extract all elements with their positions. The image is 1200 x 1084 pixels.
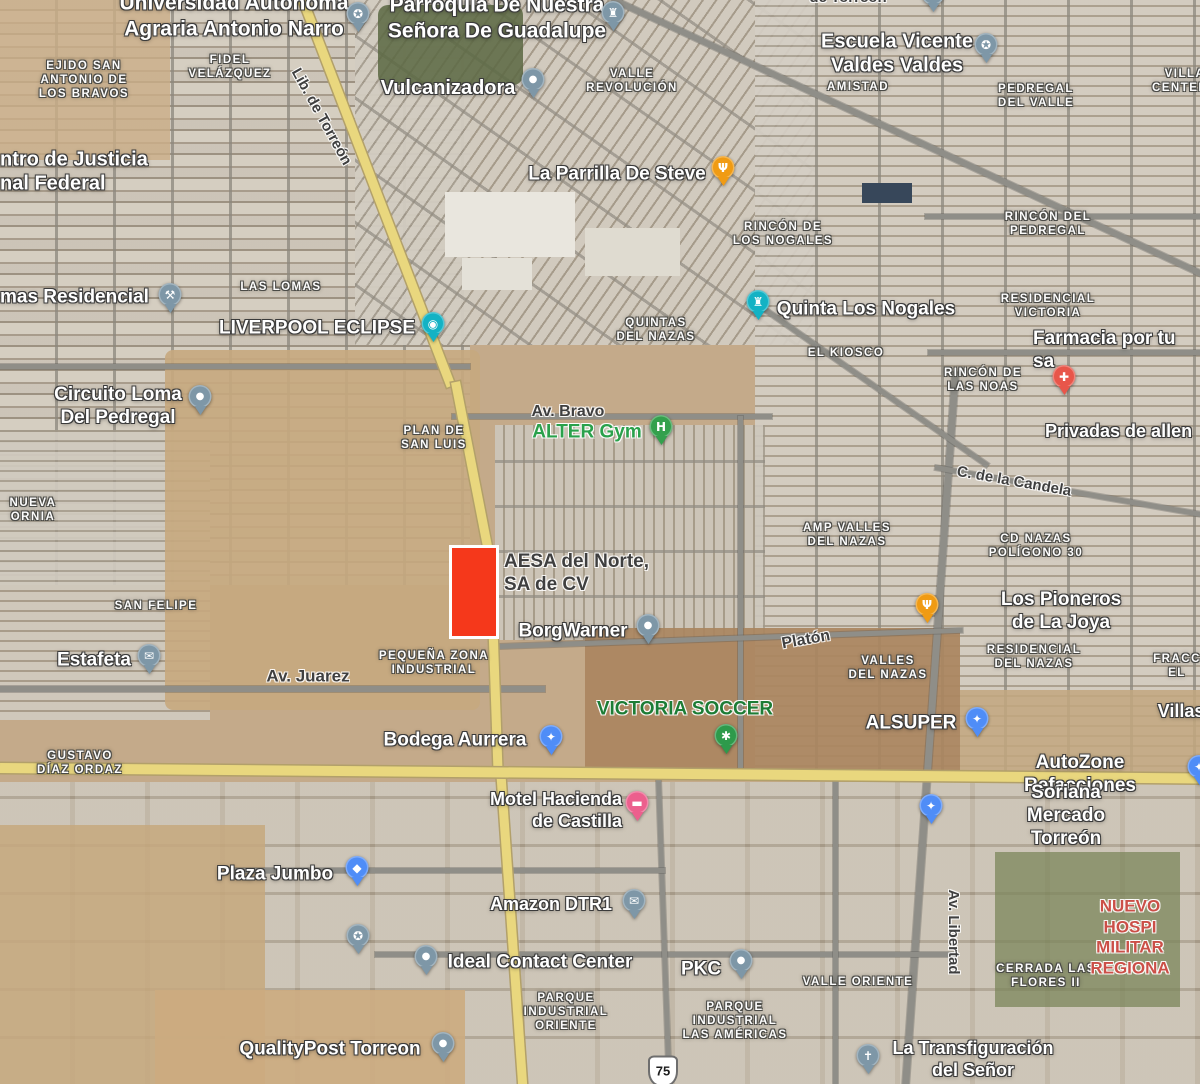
map-label-torreon-fragment: de Torreón: [809, 0, 886, 7]
vulcanizadora-pin[interactable]: ●: [522, 68, 545, 98]
map-label-el-kiosco: EL KIOSCO: [808, 346, 885, 360]
map-label-cerrada-las-flores-ii: CERRADA LAS FLORES II: [996, 962, 1096, 990]
church-icon: ♜: [608, 7, 619, 19]
lomas-residencial-pin[interactable]: ⚒: [159, 283, 182, 313]
warehouse-building-3: [462, 258, 532, 290]
pin-tail: [545, 746, 557, 755]
pin-tail: [921, 614, 933, 623]
map-label-liverpool-eclipse[interactable]: LIVERPOOL ECLIPSE: [219, 316, 415, 339]
circuito-loma-pin[interactable]: ●: [189, 385, 212, 415]
pin-tail: [164, 304, 176, 313]
alter-gym-pin[interactable]: H: [650, 415, 673, 445]
map-label-parque-industrial-oriente: PARQUE INDUSTRIAL ORIENTE: [524, 991, 609, 1033]
parroquia-pin[interactable]: ♜: [602, 1, 625, 31]
map-label-cd-nazas-poligono-30: CD NAZAS POLÍGONO 30: [989, 532, 1083, 560]
map-label-los-pioneros-de-la-joya[interactable]: Los Pioneros de La Joya: [992, 588, 1131, 634]
map-label-san-felipe: SAN FELIPE: [115, 599, 198, 613]
map-label-ejido-san-antonio: EJIDO SAN ANTONIO DE LOS BRAVOS: [39, 59, 129, 101]
map-label-amp-valles-del-nazas: AMP VALLES DEL NAZAS: [803, 521, 891, 549]
amazon-pin[interactable]: ✉: [623, 889, 646, 919]
pin-tail: [735, 970, 747, 979]
map-label-villas[interactable]: Villas: [1158, 701, 1200, 723]
pin-tail: [971, 728, 983, 737]
map-label-la-transfiguracion-del-senor[interactable]: La Transfiguración del Señor: [892, 1038, 1053, 1082]
motel-pin[interactable]: ▬: [626, 791, 649, 821]
map-label-borgwarner[interactable]: BorgWarner: [518, 619, 627, 642]
farmacia-pin[interactable]: ✚: [1053, 365, 1076, 395]
road-h-mid-left: [0, 364, 470, 369]
pin-tail: [631, 812, 643, 821]
soccer-icon: ✱: [721, 730, 731, 742]
map-label-fracc-el: FRACC EL: [1153, 652, 1200, 680]
map-label-estafeta[interactable]: Estafeta: [57, 648, 131, 671]
route-75-shield: 75: [648, 1056, 678, 1084]
alsuper-pin[interactable]: ✦: [966, 707, 989, 737]
pin-tail: [1058, 386, 1070, 395]
shopping-cart-icon: ✦: [1194, 761, 1200, 773]
autozone-pin-cut[interactable]: ✦: [1188, 755, 1200, 785]
plaza-jumbo-pin[interactable]: ◆: [346, 856, 369, 886]
transfiguracion-pin[interactable]: ✝: [857, 1044, 880, 1074]
pin-tail: [980, 54, 992, 63]
road-v-bottom-1: [833, 770, 838, 1084]
pin-tail: [437, 1053, 449, 1062]
dot-icon: ●: [529, 75, 538, 85]
school-pin-unlabeled[interactable]: ✪: [347, 924, 370, 954]
pioneros-pin[interactable]: Ψ: [916, 593, 939, 623]
map-label-nuevo-hospital-militar: NUEVO HOSPI MILITAR REGIONA: [1090, 897, 1169, 980]
map-label-ideal-contact-center[interactable]: Ideal Contact Center: [448, 950, 633, 973]
ideal-contact-pin[interactable]: ●: [415, 945, 438, 975]
map-label-valle-oriente: VALLE ORIENTE: [803, 975, 914, 989]
pin-tail: [720, 745, 732, 754]
satellite-map[interactable]: 75 EJIDO SAN ANTONIO DE LOS BRAVOSFIDEL …: [0, 0, 1200, 1084]
map-label-victoria-soccer: VICTORIA SOCCER: [597, 697, 773, 720]
borgwarner-pin[interactable]: ●: [637, 614, 660, 644]
pin-tail: [427, 333, 439, 342]
pin-tail: [351, 877, 363, 886]
pharmacy-icon: ✚: [1059, 371, 1069, 383]
shopping-cart-icon: ✦: [926, 800, 936, 812]
map-label-soriana-mercado-torreon[interactable]: Soriana Mercado Torreón: [999, 781, 1133, 851]
map-label-qualitypost-torreon[interactable]: QualityPost Torreon: [239, 1037, 420, 1060]
map-label-parque-industrial-las-americas: PARQUE INDUSTRIAL LAS AMÉRICAS: [682, 1000, 787, 1042]
graduation-cap-icon: ✪: [353, 930, 363, 942]
mail-icon: ✉: [629, 895, 639, 907]
map-label-rincon-del-pedregal: RINCÓN DEL PEDREGAL: [1005, 210, 1092, 238]
map-label-nueva-ornia: NUEVA ORNIA: [10, 496, 57, 524]
map-label-privadas-de-allende[interactable]: Privadas de allen: [1045, 421, 1192, 443]
map-label-pkc[interactable]: PKC: [681, 957, 721, 980]
map-label-av-juarez: Av. Juarez: [266, 667, 349, 688]
pin-tail: [642, 635, 654, 644]
map-label-motel-hacienda-de-castilla[interactable]: Motel Hacienda de Castilla: [490, 789, 622, 833]
map-label-escuela-vicente-valdes[interactable]: Escuela Vicente Valdes Valdes: [821, 30, 973, 79]
soriana-pin[interactable]: ✦: [920, 794, 943, 824]
pin-tail: [628, 910, 640, 919]
victoria-soccer-pin[interactable]: ✱: [715, 724, 738, 754]
shopping-cart-icon: ✦: [546, 731, 556, 743]
map-label-gustavo-diaz-ordaz: GUSTAVO DÍAZ ORDAZ: [37, 749, 123, 777]
shopping-cart-icon: ✦: [972, 713, 982, 725]
map-label-plaza-jumbo[interactable]: Plaza Jumbo: [217, 862, 333, 885]
highlighted-parcel[interactable]: [449, 545, 499, 639]
map-label-pequena-zona-industrial: PEQUEÑA ZONA INDUSTRIAL: [379, 649, 489, 677]
pkc-pin[interactable]: ●: [730, 949, 753, 979]
la-parrilla-pin[interactable]: Ψ: [712, 156, 735, 186]
bodega-aurrera-pin[interactable]: ✦: [540, 725, 563, 755]
map-label-bodega-aurrera[interactable]: Bodega Aurrera: [384, 728, 527, 751]
shopping-bag-icon: ◆: [352, 862, 361, 874]
map-label-aesa-del-norte[interactable]: AESA del Norte, SA de CV: [504, 550, 649, 596]
map-label-universidad-autonoma[interactable]: Universidad Autonoma Agraria Antonio Nar…: [119, 0, 348, 42]
pin-tail: [194, 406, 206, 415]
restaurant-icon: Ψ: [922, 599, 932, 611]
map-label-centro-de-justicia[interactable]: ntro de Justicia nal Federal: [0, 148, 148, 197]
map-label-villa-centenario: VILLA CENTENA: [1152, 67, 1200, 95]
castle-icon: ♜: [753, 296, 764, 308]
map-label-vulcanizadora[interactable]: Vulcanizadora: [381, 76, 516, 100]
camera-icon: ◉: [428, 318, 438, 330]
pin-tail: [655, 436, 667, 445]
tools-icon: ⚒: [165, 289, 176, 301]
map-label-rincon-de-los-nogales: RINCÓN DE LOS NOGALES: [733, 220, 833, 248]
universidad-pin[interactable]: ✪: [347, 2, 370, 32]
map-label-lomas-residencial[interactable]: mas Residencial: [0, 285, 149, 308]
map-label-parroquia-guadalupe[interactable]: Parroquia De Nuestra Señora De Guadalupe: [388, 0, 606, 44]
warehouse-building-2: [585, 228, 680, 276]
pin-tail: [143, 665, 155, 674]
mail-icon: ✉: [144, 650, 154, 662]
map-label-la-parrilla-de-steve[interactable]: La Parrilla De Steve: [528, 162, 705, 185]
pin-tail: [925, 815, 937, 824]
map-label-valle-revolucion: VALLE REVOLUCIÓN: [586, 67, 678, 95]
pin-tail: [352, 945, 364, 954]
dot-icon: ●: [644, 621, 653, 631]
pin-tail: [752, 311, 764, 320]
map-label-las-lomas: LAS LOMAS: [240, 280, 321, 294]
dark-building: [862, 183, 912, 203]
cut-pin-top[interactable]: ●: [922, 0, 945, 12]
map-label-amazon-dtr1[interactable]: Amazon DTR1: [490, 894, 612, 916]
map-label-pedregal-del-valle: PEDREGAL DEL VALLE: [998, 82, 1074, 110]
qualitypost-pin[interactable]: ●: [432, 1032, 455, 1062]
map-label-circuito-loma-del-pedregal[interactable]: Circuito Loma Del Pedregal: [54, 383, 182, 429]
map-label-residencial-del-nazas: RESIDENCIAL DEL NAZAS: [987, 643, 1081, 671]
pin-tail: [862, 1065, 874, 1074]
graduation-cap-icon: ✪: [981, 39, 991, 51]
dot-icon: ●: [737, 956, 746, 966]
pin-tail: [420, 966, 432, 975]
map-label-av-bravo: Av. Bravo: [532, 402, 605, 422]
map-label-av-libertad: Av. Libertad: [944, 889, 962, 974]
map-label-alter-gym: ALTER Gym: [532, 420, 641, 443]
quinta-nogales-pin[interactable]: ♜: [747, 290, 770, 320]
restaurant-icon: Ψ: [718, 162, 728, 174]
map-label-amistad: AMISTAD: [827, 80, 889, 94]
map-label-fidel-velazquez: FIDEL VELÁZQUEZ: [188, 53, 271, 81]
map-label-residencial-victoria: RESIDENCIAL VICTORIA: [1001, 292, 1095, 320]
map-label-valles-del-nazas: VALLES DEL NAZAS: [848, 654, 927, 682]
dot-icon: ●: [196, 392, 205, 402]
dot-icon: ●: [422, 952, 431, 962]
pin-tail: [1193, 776, 1200, 785]
estafeta-pin[interactable]: ✉: [138, 644, 161, 674]
map-label-alsuper[interactable]: ALSUPER: [866, 711, 957, 734]
map-label-plan-de-san-luis: PLAN DE SAN LUIS: [401, 424, 467, 452]
escuela-pin[interactable]: ✪: [975, 33, 998, 63]
warehouse-building-1: [445, 192, 575, 257]
cross-icon: ✝: [863, 1050, 873, 1062]
road-av-bravo: [452, 414, 772, 419]
pin-tail: [607, 22, 619, 31]
pin-tail: [927, 3, 939, 12]
dumbbell-icon: H: [656, 421, 666, 433]
pin-tail: [352, 23, 364, 32]
urban-patch-center: [495, 425, 765, 640]
map-label-quintas-del-nazas: QUINTAS DEL NAZAS: [616, 316, 695, 344]
pin-tail: [717, 177, 729, 186]
graduation-cap-icon: ✪: [353, 8, 363, 20]
map-label-quinta-los-nogales[interactable]: Quinta Los Nogales: [777, 297, 955, 320]
pin-tail: [527, 89, 539, 98]
bed-icon: ▬: [631, 797, 642, 809]
map-label-rincon-de-las-noas: RINCÓN DE LAS NOAS: [944, 366, 1022, 394]
dot-icon: ●: [439, 1039, 448, 1049]
liverpool-eclipse-pin[interactable]: ◉: [422, 312, 445, 342]
